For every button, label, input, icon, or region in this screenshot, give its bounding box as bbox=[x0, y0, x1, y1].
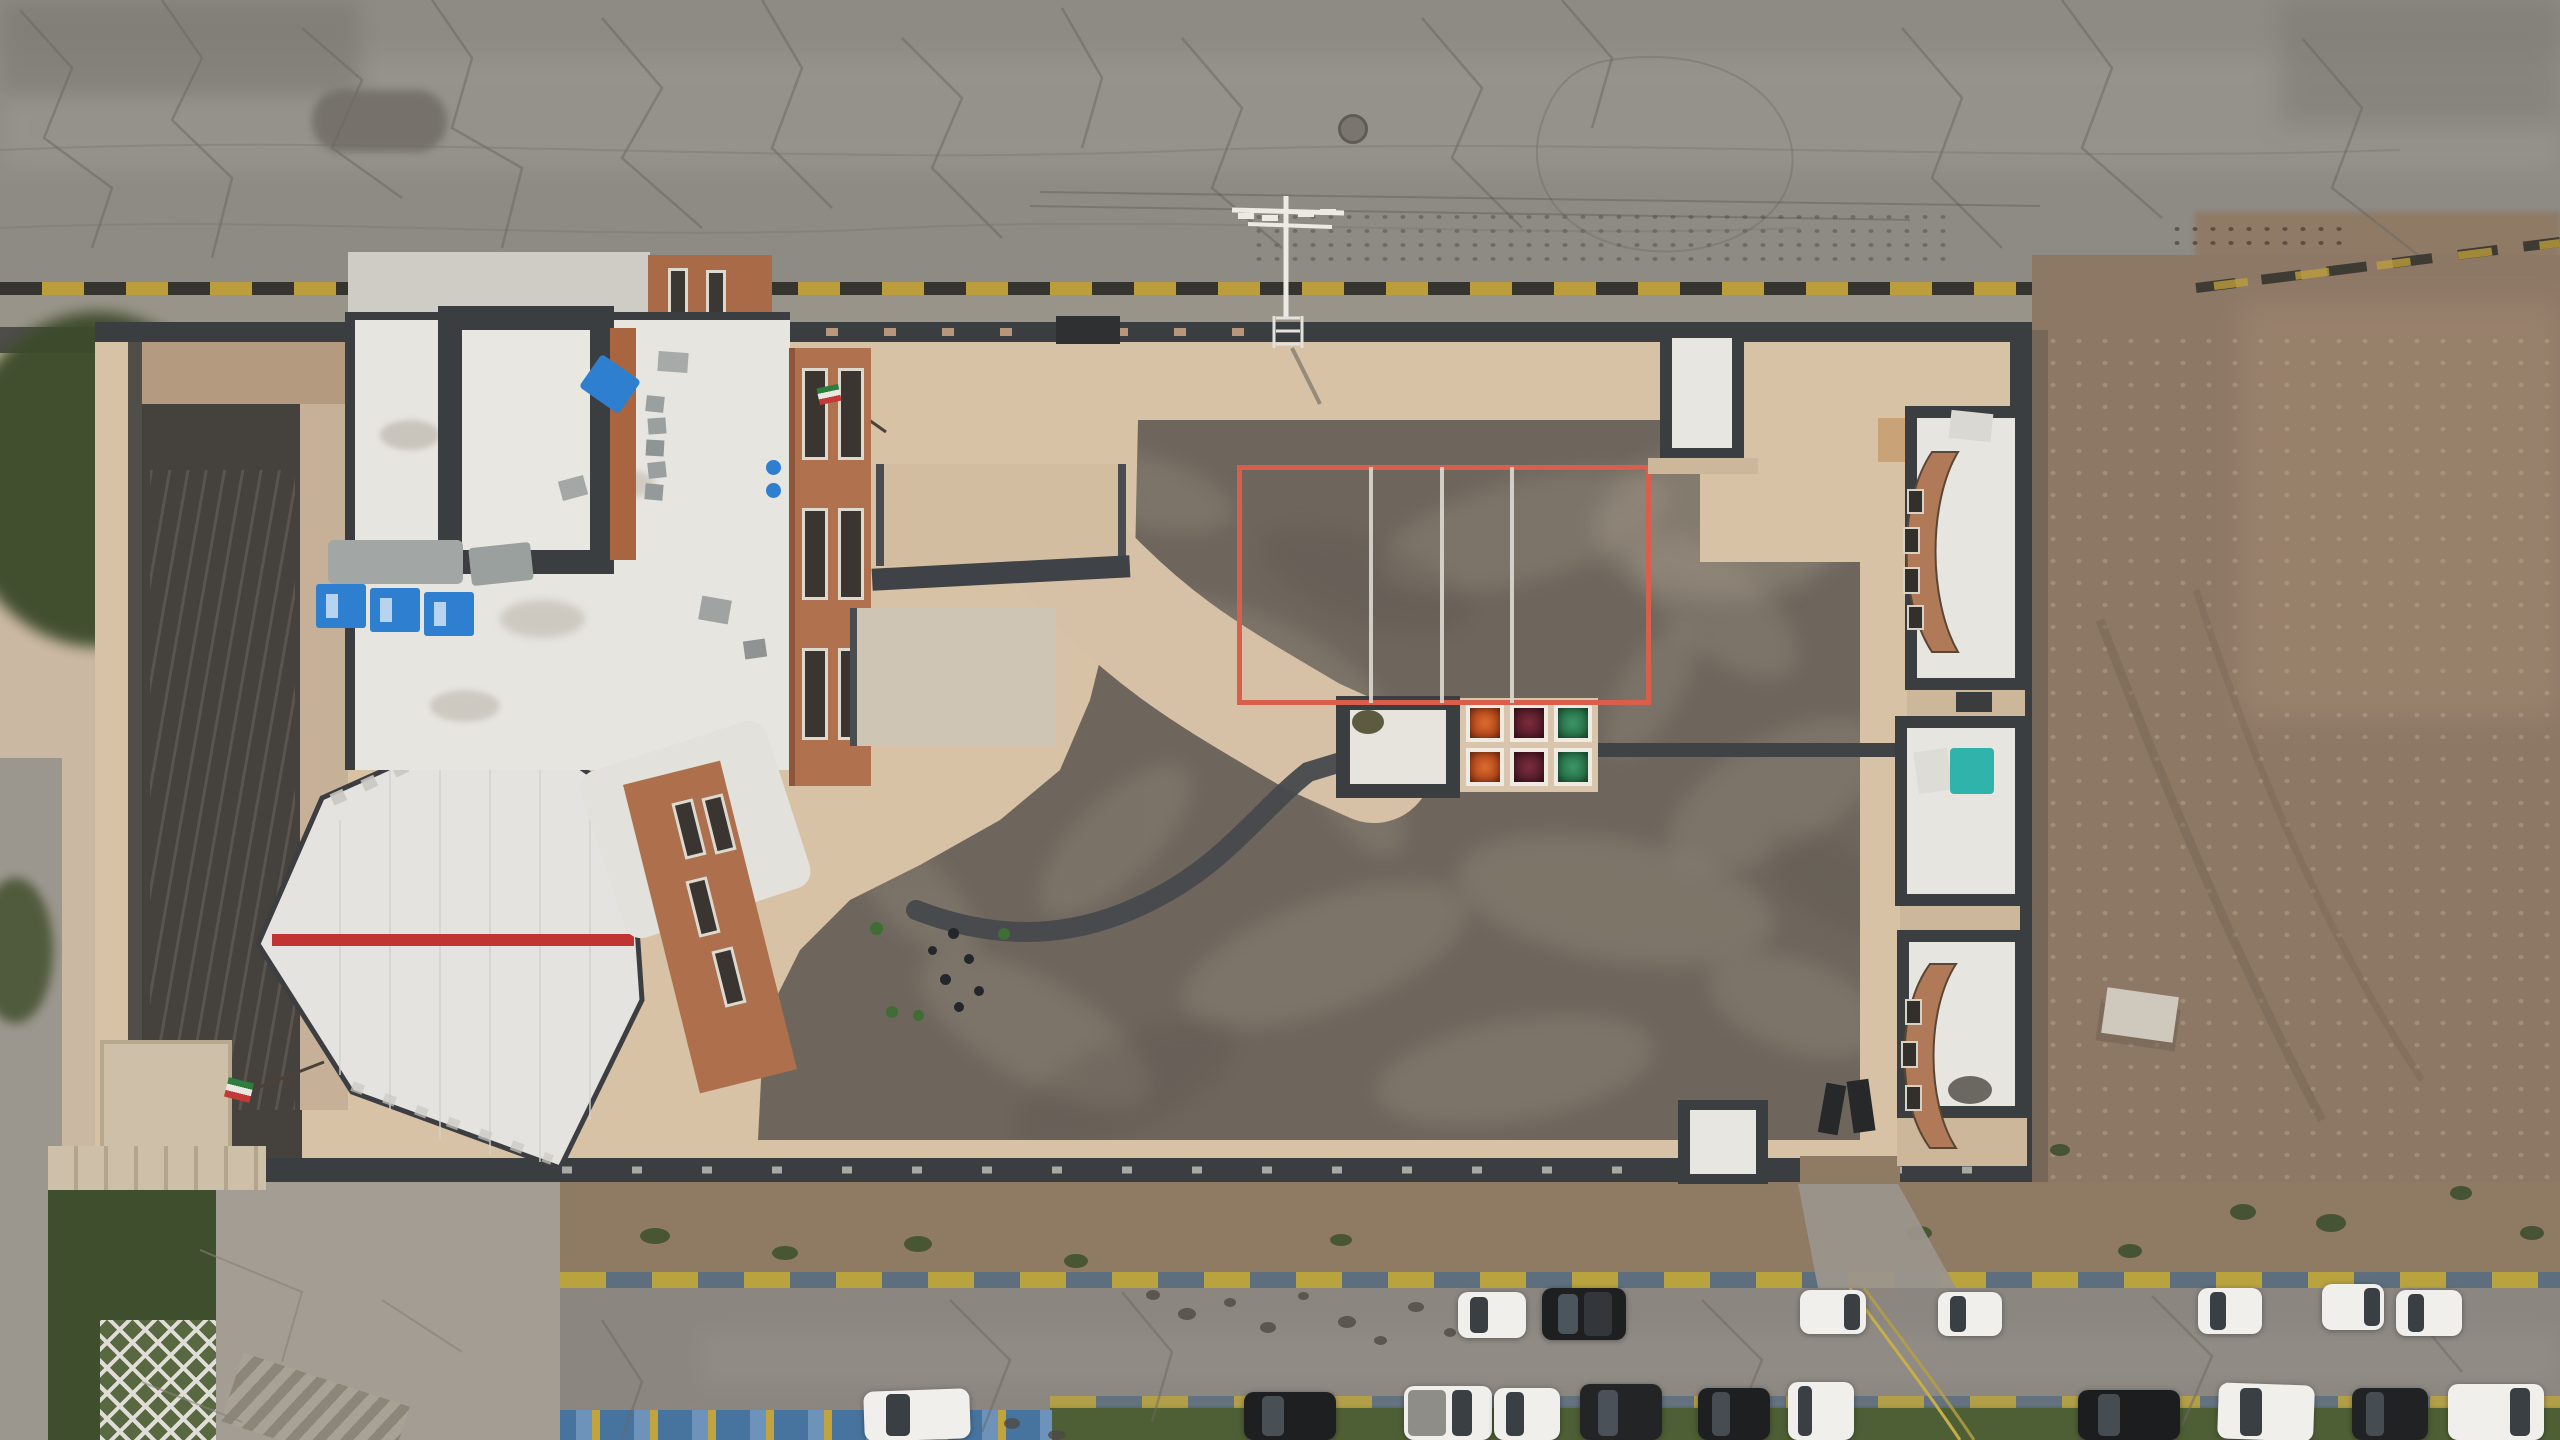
lot-weed bbox=[2520, 1226, 2544, 1240]
brick-facade-edge bbox=[789, 348, 795, 786]
south-gate-gap bbox=[1800, 1156, 1900, 1184]
person bbox=[940, 974, 951, 985]
road-stain bbox=[1260, 1322, 1276, 1333]
car-glass bbox=[1470, 1297, 1488, 1333]
canopy-step bbox=[1878, 418, 1908, 462]
canopy2-unit bbox=[1913, 748, 1953, 794]
roof-vent bbox=[657, 351, 688, 373]
rooftop-equip bbox=[645, 395, 665, 413]
facade-window bbox=[802, 368, 828, 460]
road-stain bbox=[1048, 1430, 1066, 1440]
facade-window bbox=[802, 508, 828, 600]
concrete-block bbox=[2101, 987, 2179, 1043]
car-glass bbox=[1262, 1396, 1284, 1436]
cooler-vent bbox=[434, 602, 446, 626]
rooftop-equip bbox=[646, 440, 665, 457]
facade-window bbox=[838, 368, 864, 460]
car-glass bbox=[2408, 1294, 2424, 1332]
parked-car-black bbox=[2352, 1388, 2428, 1440]
cooler-blue bbox=[370, 588, 420, 632]
parked-car-white bbox=[2396, 1290, 2462, 1336]
connector-dark bbox=[1956, 692, 1992, 712]
canopy-connector bbox=[1900, 906, 2020, 930]
person bbox=[948, 928, 959, 939]
potted-plant bbox=[998, 928, 1010, 940]
person bbox=[964, 954, 974, 964]
car-glass bbox=[2510, 1388, 2530, 1436]
potted-plant bbox=[870, 922, 883, 935]
road-stain bbox=[1178, 1308, 1196, 1320]
skylight-green bbox=[1554, 704, 1592, 742]
canopy1-unit bbox=[1949, 410, 1994, 442]
court-line bbox=[1369, 467, 1373, 703]
car-glass bbox=[2366, 1392, 2384, 1436]
roof-stain bbox=[500, 600, 585, 638]
rooftop-equip bbox=[647, 461, 667, 479]
stairs-rail bbox=[1118, 464, 1126, 566]
blue-barrel bbox=[766, 483, 781, 498]
roof-stain bbox=[380, 420, 440, 450]
roof-vent bbox=[698, 596, 732, 625]
road-stain bbox=[1298, 1292, 1309, 1300]
person bbox=[974, 986, 984, 996]
facade-window bbox=[802, 648, 828, 740]
car-glass bbox=[1950, 1296, 1966, 1332]
car-glass bbox=[1844, 1294, 1860, 1330]
car-glass bbox=[1712, 1392, 1730, 1436]
car-glass bbox=[1798, 1386, 1812, 1436]
parked-car-white bbox=[1458, 1292, 1526, 1338]
facade-window bbox=[838, 508, 864, 600]
parked-car-white bbox=[2217, 1382, 2315, 1440]
car-glass bbox=[2364, 1288, 2380, 1326]
entry-stairs-upper bbox=[880, 464, 1122, 566]
lot-weed bbox=[2230, 1204, 2256, 1220]
car-glass bbox=[2098, 1394, 2120, 1436]
car-glass bbox=[886, 1394, 910, 1436]
parked-car-white bbox=[1938, 1292, 2002, 1336]
road-stain bbox=[1146, 1290, 1160, 1300]
hvac-cluster bbox=[328, 540, 463, 584]
court-line bbox=[1510, 467, 1514, 703]
garden-flag bbox=[224, 1077, 254, 1103]
cooler-blue bbox=[424, 592, 474, 636]
blue-barrel bbox=[766, 460, 781, 475]
skylight-orange bbox=[1466, 704, 1504, 742]
canopy3-pad bbox=[1897, 1118, 2027, 1166]
lot-weed bbox=[2316, 1214, 2346, 1232]
parked-car-black bbox=[2078, 1390, 2180, 1440]
person bbox=[954, 1002, 964, 1012]
skylight-maroon bbox=[1510, 704, 1548, 742]
parked-car-black bbox=[1698, 1388, 1770, 1440]
water-tank-teal bbox=[1950, 748, 1994, 794]
parked-car-black bbox=[1580, 1384, 1662, 1440]
south-kiosk-roof bbox=[1690, 1110, 1756, 1174]
roof-stain bbox=[430, 690, 500, 722]
potted-plant bbox=[913, 1010, 924, 1021]
canopy1-roof bbox=[1917, 418, 2015, 678]
road-stain bbox=[1004, 1418, 1020, 1429]
potted-plant bbox=[886, 1006, 898, 1018]
parked-car-white bbox=[1494, 1388, 1560, 1440]
skylight-green bbox=[1554, 748, 1592, 786]
car-glass bbox=[1598, 1390, 1618, 1436]
north-kiosk-pad bbox=[1648, 458, 1758, 474]
parked-car-white bbox=[863, 1388, 971, 1440]
lot-weed bbox=[2450, 1186, 2472, 1200]
cooler-vent bbox=[380, 598, 392, 622]
road-stain bbox=[1374, 1336, 1387, 1345]
pavilion-moss bbox=[1352, 710, 1384, 734]
car-glass bbox=[2240, 1388, 2262, 1436]
entry-porch-lower bbox=[854, 608, 1056, 746]
hvac-unit bbox=[468, 542, 534, 586]
cooler-blue bbox=[316, 584, 366, 628]
north-kiosk-roof bbox=[1672, 338, 1732, 448]
roof-vent bbox=[743, 639, 767, 660]
canopy3-stain bbox=[1948, 1076, 1992, 1104]
skylight-maroon bbox=[1510, 748, 1548, 786]
rooftop-equip bbox=[644, 483, 663, 501]
lot-weed bbox=[2050, 1144, 2070, 1156]
road-stain bbox=[1444, 1328, 1456, 1337]
cooler-vent bbox=[326, 594, 338, 618]
volleyball-court bbox=[1237, 465, 1651, 705]
car-glass bbox=[2210, 1292, 2226, 1330]
stairs-rail bbox=[876, 464, 884, 566]
person bbox=[928, 946, 937, 955]
road-stain bbox=[1224, 1298, 1236, 1307]
car-roof bbox=[1584, 1292, 1612, 1336]
structures-layer bbox=[0, 0, 2560, 1440]
south-gate-door bbox=[1846, 1079, 1875, 1134]
court-line bbox=[1440, 467, 1444, 703]
parked-car-white bbox=[2198, 1288, 2262, 1334]
aerial-photo-stage bbox=[0, 0, 2560, 1440]
lot-weed bbox=[2118, 1244, 2142, 1258]
rooftop-box-roof bbox=[462, 330, 590, 550]
car-glass bbox=[1506, 1392, 1524, 1436]
car-glass bbox=[1452, 1390, 1472, 1436]
skylight-orange bbox=[1466, 748, 1504, 786]
rooftop-equip bbox=[647, 417, 666, 434]
car-glass bbox=[1558, 1294, 1578, 1334]
pickup-bed bbox=[1408, 1390, 1446, 1436]
south-gate-door bbox=[1818, 1083, 1846, 1136]
road-stain bbox=[1338, 1316, 1356, 1328]
road-stain bbox=[1408, 1302, 1424, 1312]
parked-car-black bbox=[1244, 1392, 1336, 1440]
porch-rail bbox=[850, 608, 857, 746]
